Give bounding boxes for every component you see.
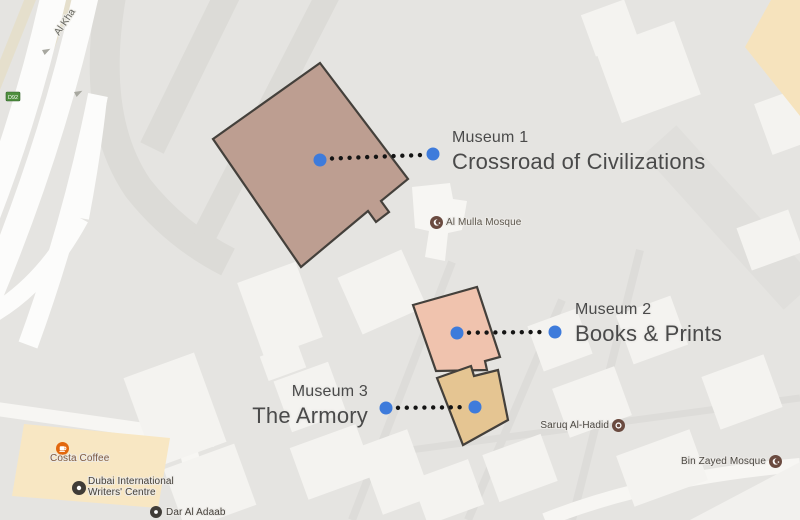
mosque-icon xyxy=(769,455,782,468)
museum-2-label: Museum 2 xyxy=(575,300,722,320)
museum-3-name: The Armory xyxy=(252,402,368,429)
poi-label: Al Mulla Mosque xyxy=(446,217,521,228)
museum-3-annotation: Museum 3 The Armory xyxy=(252,382,368,429)
museum-3-label-dot[interactable] xyxy=(380,402,393,415)
map-background: D92 Al Kha xyxy=(0,0,800,520)
museum-1-label: Museum 1 xyxy=(452,128,705,148)
map-canvas: D92 Al Kha xyxy=(0,0,800,520)
poi-dar-al-adaab[interactable]: Dar Al Adaab xyxy=(150,506,226,519)
poi-writers-centre[interactable]: Dubai International Writers' Centre xyxy=(72,476,174,498)
museum-1-name: Crossroad of Civilizations xyxy=(452,148,705,175)
landmark-icon xyxy=(72,481,85,494)
museum-2-name: Books & Prints xyxy=(575,320,722,347)
poi-label: Saruq Al-Hadid xyxy=(540,420,609,431)
poi-bin-zayed-mosque[interactable]: Bin Zayed Mosque xyxy=(681,455,782,468)
poi-saruq-al-hadid[interactable]: Saruq Al-Hadid xyxy=(540,419,625,432)
museum-3-marker-dot[interactable] xyxy=(469,401,482,414)
museum-2-annotation: Museum 2 Books & Prints xyxy=(575,300,722,347)
poi-al-mulla-mosque[interactable]: Al Mulla Mosque xyxy=(430,216,521,229)
mosque-icon xyxy=(430,216,443,229)
museum-1-label-dot[interactable] xyxy=(427,148,440,161)
poi-label-line2: Writers' Centre xyxy=(88,487,156,498)
route-badge-text: D92 xyxy=(8,95,18,101)
poi-label-line1: Dubai International xyxy=(88,476,174,487)
route-badge: D92 xyxy=(6,92,20,101)
museum-1-annotation: Museum 1 Crossroad of Civilizations xyxy=(452,128,705,175)
museum-1-marker-dot[interactable] xyxy=(314,154,327,167)
poi-label: Bin Zayed Mosque xyxy=(681,456,766,467)
poi-label: Costa Coffee xyxy=(50,453,109,464)
poi-costa-coffee[interactable]: Costa Coffee xyxy=(50,453,109,464)
poi-label: Dar Al Adaab xyxy=(166,507,226,518)
museum-3-label: Museum 3 xyxy=(252,382,368,402)
landmark-icon xyxy=(150,506,163,519)
museum-2-marker-dot[interactable] xyxy=(451,327,464,340)
museum-2-label-dot[interactable] xyxy=(549,326,562,339)
museum-poi-icon xyxy=(612,419,625,432)
